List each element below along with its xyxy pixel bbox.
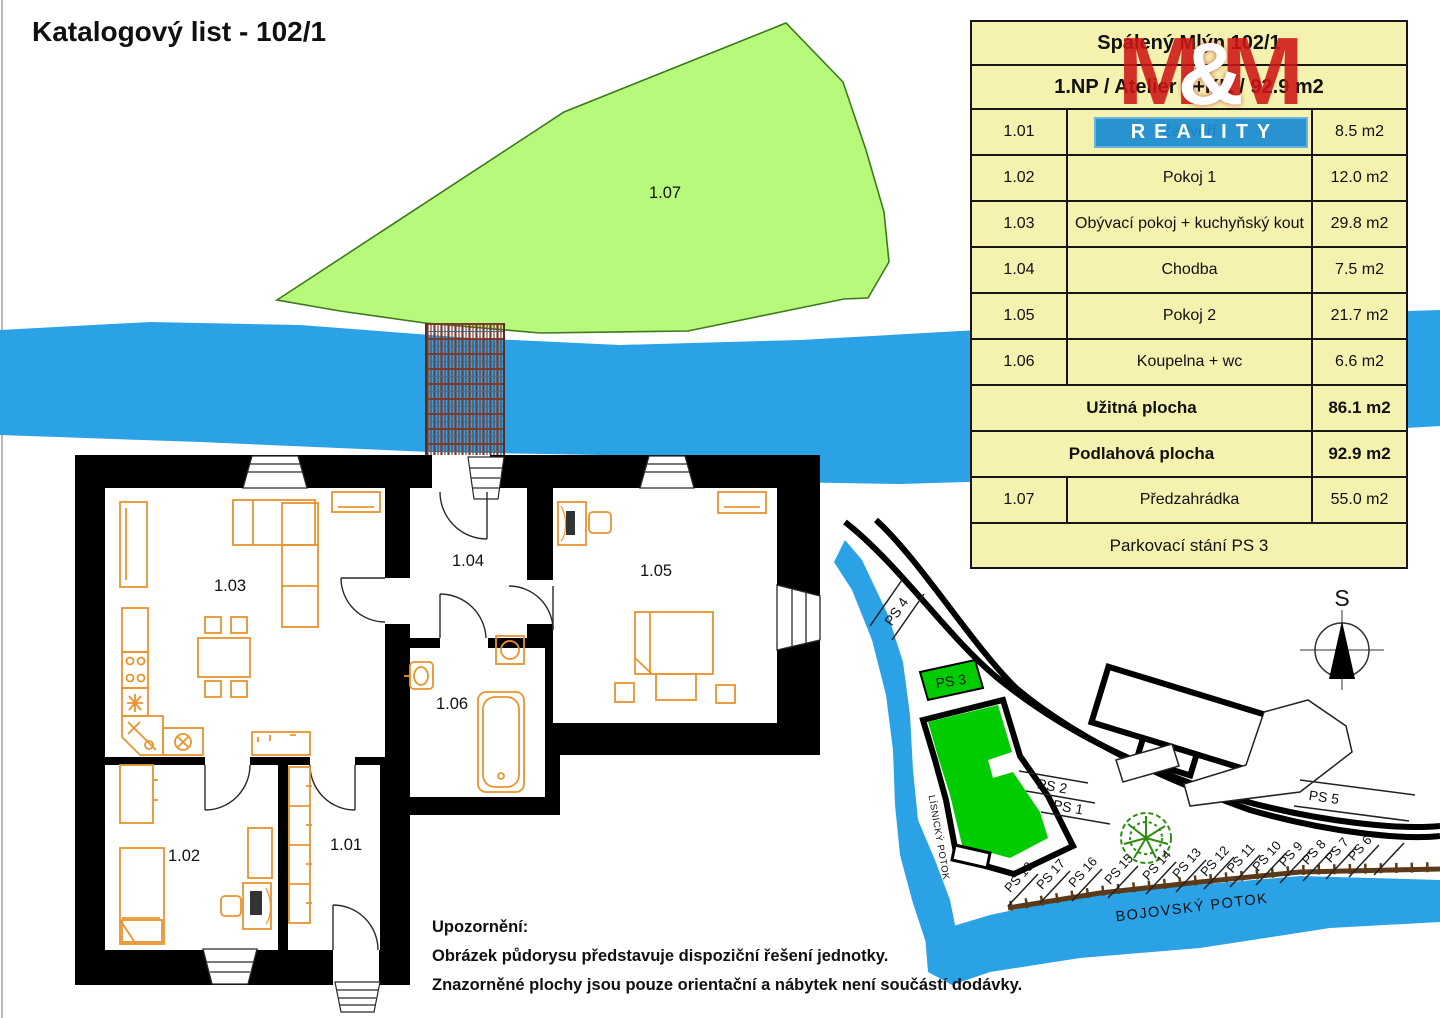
disclaimer-notes: Upozornění: Obrázek půdorysu představuje… <box>432 913 1022 1000</box>
table-footer-parking: Parkovací stání PS 3 <box>971 523 1407 568</box>
room-label-105: 1.05 <box>640 562 672 580</box>
parking-spot-label: PS 6 <box>1345 832 1375 863</box>
table-row-total: Užitná plocha 86.1 m2 <box>971 385 1407 431</box>
room-no: 1.05 <box>971 293 1067 339</box>
table-row: 1.02 Pokoj 1 12.0 m2 <box>971 155 1407 201</box>
room-label-103: 1.03 <box>214 577 246 595</box>
parking-spot-label: PS 16 <box>1065 854 1100 890</box>
room-name: Pokoj 1 <box>1067 155 1312 201</box>
room-name: Koupelna + wc <box>1067 339 1312 385</box>
table-row: 1.04 Chodba 7.5 m2 <box>971 247 1407 293</box>
table-row-total: Podlahová plocha 92.9 m2 <box>971 431 1407 477</box>
room-area: 12.0 m2 <box>1312 155 1407 201</box>
room-no: 1.06 <box>971 339 1067 385</box>
compass-icon <box>1300 610 1384 690</box>
page-title: Katalogový list - 102/1 <box>32 16 326 48</box>
parking-spot-label: PS 15 <box>1101 851 1136 887</box>
total-label: Podlahová plocha <box>971 431 1312 477</box>
table-row: 1.01 Zádveří 8.5 m2 <box>971 109 1407 155</box>
total-value: 86.1 m2 <box>1312 385 1407 431</box>
footbridge <box>426 323 504 460</box>
room-name: Zádveří <box>1067 109 1312 155</box>
room-area: 7.5 m2 <box>1312 247 1407 293</box>
room-no: 1.03 <box>971 201 1067 247</box>
notes-line: Znazorněné plochy jsou pouze orientační … <box>432 971 1022 1000</box>
total-value: 92.9 m2 <box>1312 431 1407 477</box>
room-area: 6.6 m2 <box>1312 339 1407 385</box>
garden-plot <box>277 23 889 333</box>
parking-spot-label: PS 11 <box>1224 840 1258 876</box>
room-no: 1.02 <box>971 155 1067 201</box>
room-no: 1.01 <box>971 109 1067 155</box>
entry-steps-bottom <box>335 982 380 1012</box>
notes-line: Obrázek půdorysu představuje dispoziční … <box>432 942 1022 971</box>
parking-spot-label: PS 14 <box>1139 847 1174 883</box>
room-label-104: 1.04 <box>452 552 484 570</box>
parking-spot-ps5: PS 5 <box>1308 787 1340 807</box>
table-row: 1.06 Koupelna + wc 6.6 m2 <box>971 339 1407 385</box>
room-no: 1.07 <box>971 477 1067 523</box>
table-row: 1.03 Obývací pokoj + kuchyňský kout 29.8… <box>971 201 1407 247</box>
room-area: 8.5 m2 <box>1312 109 1407 155</box>
parking-spot-ps4: PS 4 <box>881 594 912 628</box>
catalog-sheet: { "page": { "title": "Katalogový list - … <box>0 0 1440 1018</box>
room-no: 1.04 <box>971 247 1067 293</box>
notes-heading: Upozornění: <box>432 913 1022 942</box>
room-area: 21.7 m2 <box>1312 293 1407 339</box>
room-label-101: 1.01 <box>330 836 362 854</box>
table-title: Spálený Mlýn 102/1 <box>971 21 1407 65</box>
room-name: Pokoj 2 <box>1067 293 1312 339</box>
neighbour-building <box>1085 667 1352 806</box>
room-name: Předzahrádka <box>1067 477 1312 523</box>
garden-label: 1.07 <box>649 184 681 202</box>
entry-steps-top <box>468 457 504 499</box>
room-label-106: 1.06 <box>436 695 468 713</box>
unit-table: Spálený Mlýn 102/1 1.NP / Atelier 3+KK /… <box>970 20 1408 569</box>
room-area: 55.0 m2 <box>1312 477 1407 523</box>
table-subtitle: 1.NP / Atelier 3+KK / 92.9 m2 <box>971 65 1407 109</box>
total-label: Užitná plocha <box>971 385 1312 431</box>
compass-north-label: S <box>1334 585 1349 611</box>
room-area: 29.8 m2 <box>1312 201 1407 247</box>
table-row: 1.05 Pokoj 2 21.7 m2 <box>971 293 1407 339</box>
room-name: Chodba <box>1067 247 1312 293</box>
room-name: Obývací pokoj + kuchyňský kout <box>1067 201 1312 247</box>
table-row: 1.07 Předzahrádka 55.0 m2 <box>971 477 1407 523</box>
room-label-102: 1.02 <box>168 847 200 865</box>
